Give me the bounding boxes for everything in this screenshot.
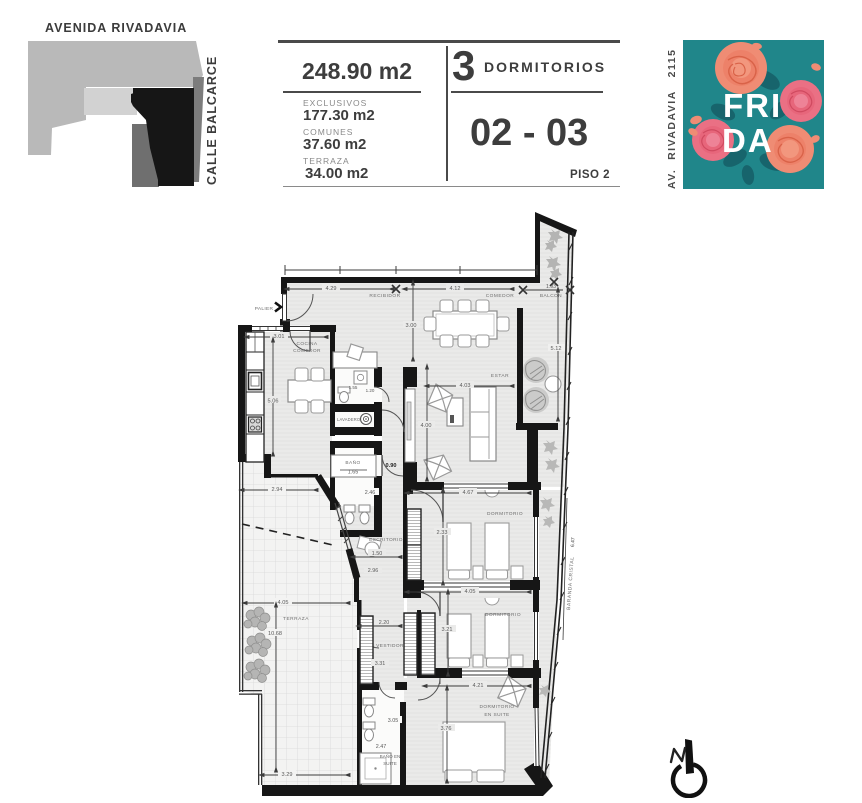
svg-text:BAÑO EN: BAÑO EN	[380, 753, 401, 759]
svg-text:1.20: 1.20	[366, 388, 375, 393]
svg-text:LAVADERO: LAVADERO	[337, 417, 360, 422]
svg-text:2.94: 2.94	[272, 487, 283, 493]
svg-text:3.05: 3.05	[388, 718, 399, 724]
svg-text:3.29: 3.29	[282, 772, 293, 778]
svg-text:COMEDOR: COMEDOR	[293, 348, 321, 354]
svg-text:BARANDA CRISTAL: BARANDA CRISTAL	[566, 556, 576, 610]
svg-text:2.96: 2.96	[368, 568, 379, 574]
svg-text:4.21: 4.21	[473, 683, 484, 689]
svg-text:VESTIDOR: VESTIDOR	[376, 643, 404, 649]
svg-text:TERRAZA: TERRAZA	[283, 616, 309, 622]
svg-text:2.33: 2.33	[437, 530, 448, 536]
svg-text:BALCON: BALCON	[540, 293, 562, 299]
svg-text:6.47: 6.47	[570, 537, 577, 547]
svg-text:PALIER: PALIER	[255, 306, 274, 312]
svg-text:4.12: 4.12	[450, 286, 461, 292]
svg-text:EN SUITE: EN SUITE	[484, 712, 509, 718]
svg-text:2.46: 2.46	[365, 490, 376, 496]
svg-text:DORMITORIO: DORMITORIO	[479, 704, 514, 710]
svg-text:0.90: 0.90	[386, 463, 397, 469]
svg-text:5.06: 5.06	[268, 399, 279, 405]
svg-text:3.21: 3.21	[442, 627, 453, 633]
svg-text:2.47: 2.47	[376, 744, 387, 750]
svg-text:SUITE: SUITE	[383, 761, 397, 766]
svg-text:3.31: 3.31	[375, 661, 386, 667]
svg-text:5.12: 5.12	[551, 346, 562, 352]
svg-text:DORMITORIO: DORMITORIO	[487, 511, 523, 517]
svg-text:3.01: 3.01	[274, 334, 285, 340]
svg-text:DORMITORIO: DORMITORIO	[485, 612, 521, 618]
svg-text:4.05: 4.05	[278, 600, 289, 606]
svg-text:BAÑO: BAÑO	[345, 459, 360, 466]
svg-text:RECIBIDOR: RECIBIDOR	[369, 293, 400, 299]
svg-text:4.05: 4.05	[465, 589, 476, 595]
svg-text:ESTAR: ESTAR	[491, 373, 509, 379]
svg-text:COCINA: COCINA	[296, 341, 317, 347]
svg-text:4.67: 4.67	[463, 490, 474, 496]
svg-text:3.76: 3.76	[441, 726, 452, 732]
svg-text:COMEDOR: COMEDOR	[486, 293, 515, 299]
svg-text:1.65: 1.65	[348, 470, 359, 476]
svg-text:2.20: 2.20	[379, 620, 390, 626]
svg-text:10.68: 10.68	[268, 631, 282, 637]
svg-text:1.50: 1.50	[372, 551, 383, 557]
svg-text:4.29: 4.29	[326, 286, 337, 292]
svg-text:3.00: 3.00	[406, 323, 417, 329]
svg-text:4.00: 4.00	[421, 423, 432, 429]
svg-text:1.55: 1.55	[349, 385, 358, 390]
svg-text:4.03: 4.03	[460, 383, 471, 389]
svg-text:ESCRITORIO: ESCRITORIO	[369, 537, 403, 543]
